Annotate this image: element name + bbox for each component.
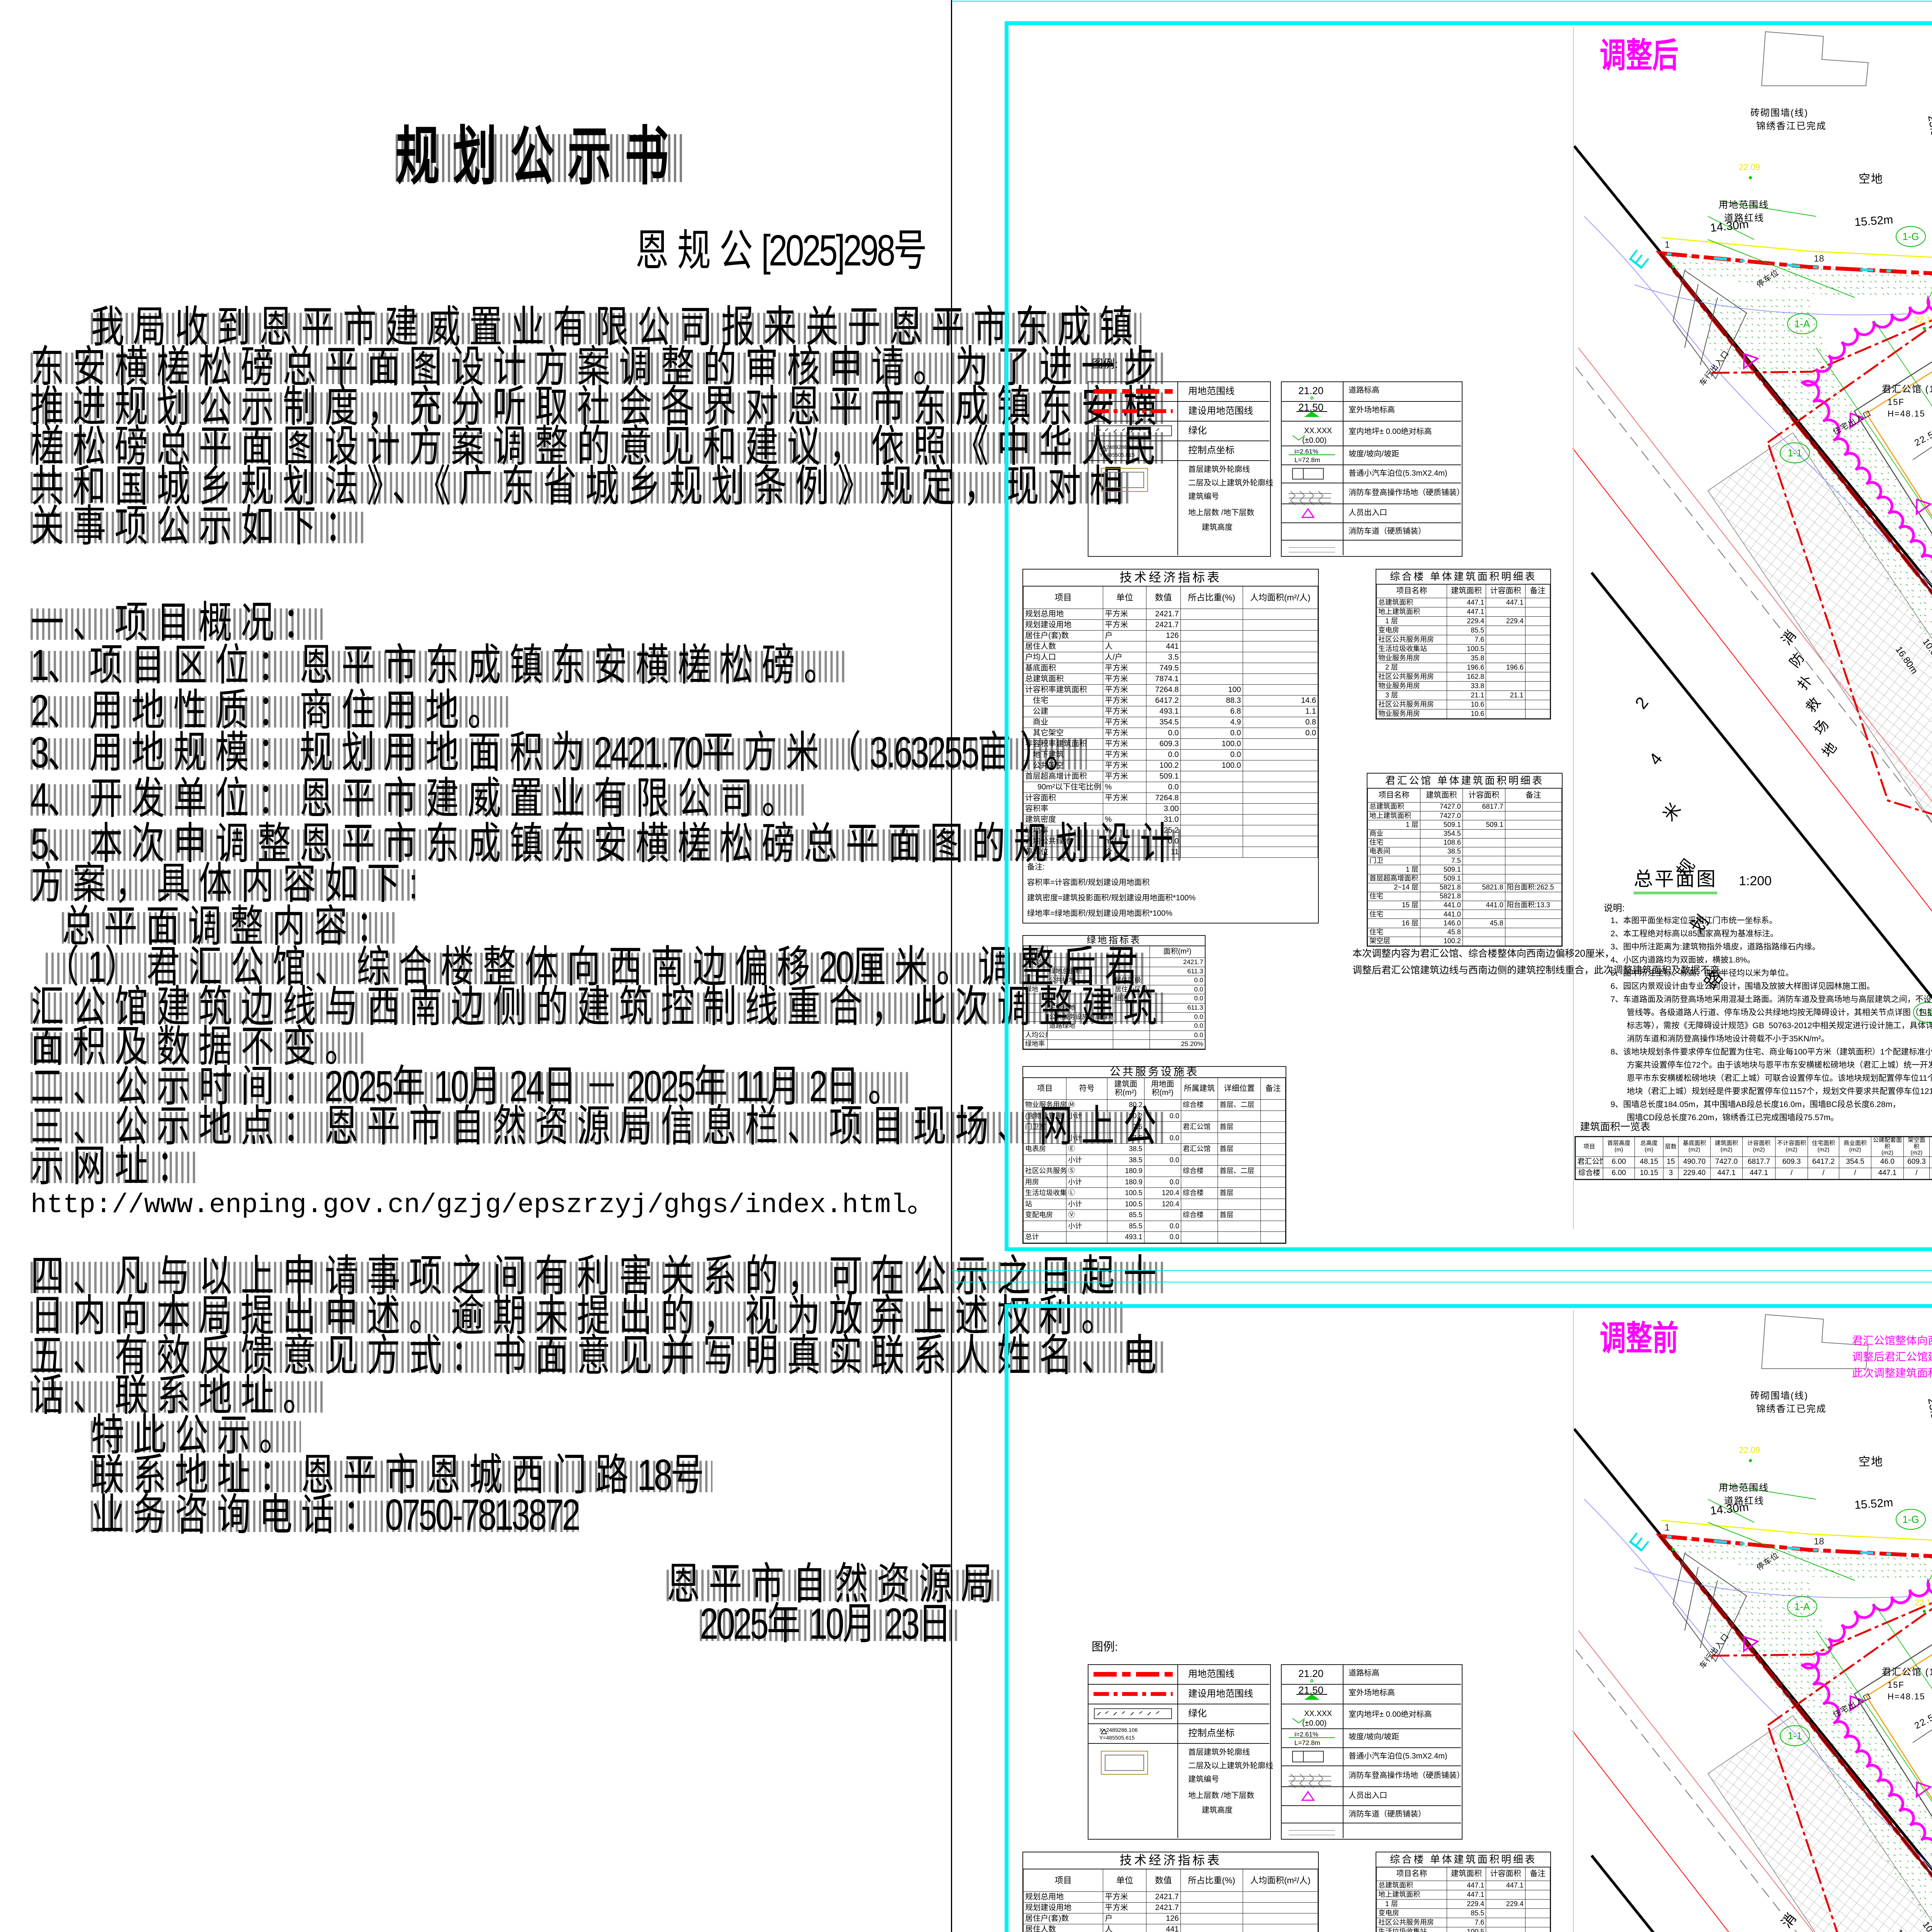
svg-text:场: 场 bbox=[1811, 716, 1832, 738]
svg-text:砖砌围墙(线): 砖砌围墙(线) bbox=[1750, 1391, 1808, 1401]
svg-text:1-1: 1-1 bbox=[1787, 447, 1802, 459]
svg-text:H=48.15: H=48.15 bbox=[1888, 1692, 1925, 1701]
svg-text:锦绣香江已完成: 锦绣香江已完成 bbox=[1756, 121, 1827, 131]
svg-text:15F: 15F bbox=[1888, 397, 1905, 407]
svg-text:道路红线: 道路红线 bbox=[1724, 213, 1764, 223]
svg-text:1: 1 bbox=[1665, 240, 1670, 250]
svg-text:空地: 空地 bbox=[1859, 1456, 1883, 1468]
svg-text:君汇公馆 (1#): 君汇公馆 (1#) bbox=[1882, 384, 1932, 395]
svg-text:18: 18 bbox=[1814, 253, 1824, 264]
svg-text:1: 1 bbox=[1665, 1522, 1670, 1533]
svg-text:4: 4 bbox=[1645, 749, 1667, 769]
svg-text:1-A: 1-A bbox=[1794, 1601, 1810, 1612]
svg-text:用地范围线: 用地范围线 bbox=[1719, 200, 1769, 210]
svg-text:米: 米 bbox=[1659, 799, 1685, 825]
svg-text:1-G: 1-G bbox=[1902, 231, 1919, 242]
svg-text:消: 消 bbox=[1778, 1910, 1800, 1931]
svg-text:E: E bbox=[1624, 245, 1653, 274]
svg-text:15.52m: 15.52m bbox=[1854, 1496, 1893, 1512]
svg-text:H=48.15: H=48.15 bbox=[1888, 409, 1925, 418]
svg-text:E: E bbox=[1624, 1528, 1653, 1556]
svg-text:1-G: 1-G bbox=[1902, 1514, 1919, 1525]
svg-text:15.52m: 15.52m bbox=[1854, 213, 1893, 229]
svg-text:消: 消 bbox=[1778, 627, 1800, 648]
svg-text:1-1: 1-1 bbox=[1787, 1730, 1802, 1742]
svg-text:道路红线: 道路红线 bbox=[1724, 1496, 1764, 1506]
svg-text:1-A: 1-A bbox=[1794, 318, 1810, 330]
svg-text:用地范围线: 用地范围线 bbox=[1719, 1483, 1769, 1493]
svg-text:2: 2 bbox=[1631, 693, 1653, 713]
svg-text:地: 地 bbox=[1819, 739, 1840, 760]
svg-text:空地: 空地 bbox=[1859, 173, 1883, 185]
svg-text:22.16: 22.16 bbox=[1915, 315, 1932, 325]
svg-text:砖砌围墙(线): 砖砌围墙(线) bbox=[1750, 108, 1808, 118]
svg-text:18: 18 bbox=[1814, 1536, 1824, 1547]
svg-text:锦绣香江已完成: 锦绣香江已完成 bbox=[1756, 1404, 1827, 1414]
svg-text:救: 救 bbox=[1803, 694, 1824, 715]
svg-text:23.90m: 23.90m bbox=[1926, 114, 1932, 152]
svg-text:22.09: 22.09 bbox=[1739, 1445, 1760, 1455]
svg-text:15F: 15F bbox=[1888, 1680, 1905, 1690]
svg-text:扑: 扑 bbox=[1794, 672, 1816, 693]
svg-text:22.09: 22.09 bbox=[1739, 162, 1760, 172]
svg-text:防: 防 bbox=[1786, 649, 1808, 670]
